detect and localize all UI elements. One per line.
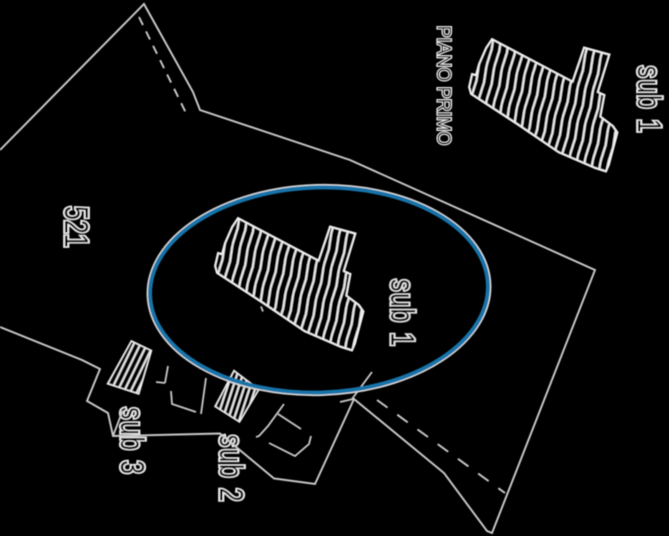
svg-text:521: 521	[57, 206, 95, 248]
svg-text:sub 2: sub 2	[212, 435, 250, 504]
svg-text:sub 1: sub 1	[630, 66, 668, 135]
svg-text:sub 1: sub 1	[383, 279, 421, 348]
svg-text:sub 3: sub 3	[113, 407, 151, 476]
svg-text:PIANO PRIMO: PIANO PRIMO	[432, 26, 454, 146]
